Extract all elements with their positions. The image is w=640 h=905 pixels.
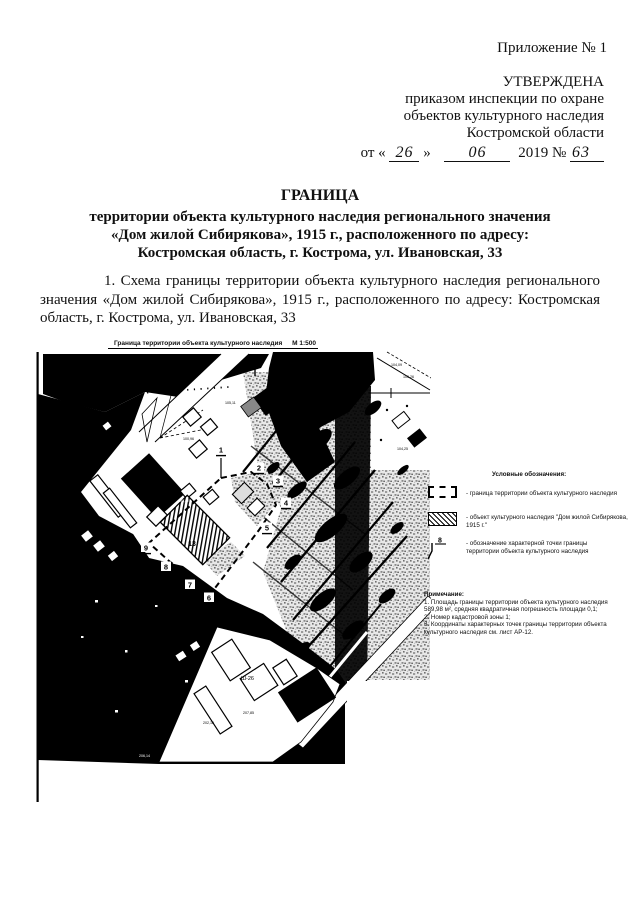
- approval-line-3: объектов культурного наследия: [361, 108, 604, 125]
- point-marker-2: 2: [254, 463, 264, 474]
- hatched-object-icon: [428, 512, 457, 526]
- date-year: 2019 №: [518, 145, 566, 161]
- date-month-handwritten: 06: [444, 144, 510, 162]
- point-marker-4: 4: [281, 498, 291, 509]
- point-marker-7: 7: [185, 580, 195, 591]
- date-prefix: от «: [361, 145, 386, 161]
- map-left-border: [37, 352, 39, 802]
- svg-text:206,14: 206,14: [139, 754, 150, 758]
- map-scale: М 1:500: [292, 340, 316, 347]
- svg-text:5: 5: [265, 524, 269, 533]
- document-page: Приложение № 1 УТВЕРЖДЕНА приказом инспе…: [0, 0, 640, 905]
- svg-text:207,85: 207,85: [243, 711, 254, 715]
- svg-text:9: 9: [144, 544, 148, 553]
- point-marker-9: 9: [141, 543, 151, 554]
- document-title: ГРАНИЦА территории объекта культурного н…: [0, 187, 640, 262]
- svg-text:6: 6: [207, 594, 211, 603]
- svg-text:3: 3: [276, 477, 280, 486]
- note-item-2: 2. Номер кадастровой зоны 1;: [424, 614, 622, 622]
- legend-point-number: 8: [438, 538, 442, 545]
- approval-line-2: приказом инспекции по охране: [361, 91, 604, 108]
- point-marker-6: 6: [204, 593, 214, 604]
- approval-block: УТВЕРЖДЕНА приказом инспекции по охране …: [361, 74, 604, 162]
- map-title: Граница территории объекта культурного н…: [108, 340, 318, 349]
- legend-caption-object: - объект культурного наследия "Дом жилой…: [466, 514, 631, 529]
- appendix-label: Приложение № 1: [0, 40, 607, 57]
- note-item-3: 3. Координаты характерных точек границы …: [424, 621, 622, 636]
- svg-text:108,82: 108,82: [178, 499, 189, 503]
- approval-line-4: Костромской области: [361, 125, 604, 142]
- boundary-point-icon: 8: [425, 536, 451, 567]
- title-line-4: Костромская область, г. Кострома, ул. Ив…: [0, 244, 640, 262]
- svg-text:1: 1: [219, 446, 223, 455]
- map-bottom-margin: [35, 766, 347, 805]
- legend-heading: Условные обозначения:: [492, 471, 566, 479]
- point-marker-5: 5: [262, 523, 272, 534]
- cadastral-map: 13 Ш-26: [35, 350, 431, 805]
- svg-text:105,11: 105,11: [225, 401, 236, 405]
- point-marker-3: 3: [273, 476, 283, 487]
- map-title-text: Граница территории объекта культурного н…: [114, 340, 282, 347]
- black-band-vertical: [335, 386, 371, 690]
- paragraph-1: 1. Схема границы территории объекта куль…: [40, 272, 600, 328]
- svg-text:8: 8: [164, 563, 168, 572]
- legend-caption-point: - обозначение характерной точки границы …: [466, 540, 618, 555]
- note-item-1: 1. Площадь границы территории объекта ку…: [424, 599, 622, 614]
- date-quote-close: »: [423, 145, 431, 161]
- block-label: Ш-26: [241, 676, 254, 682]
- svg-text:2: 2: [257, 464, 261, 473]
- svg-text:100,96: 100,96: [183, 437, 194, 441]
- heritage-building-number: 13: [188, 541, 196, 548]
- point-marker-8: 8: [161, 562, 171, 573]
- svg-text:104,09: 104,09: [391, 363, 402, 367]
- title-line-2: территории объекта культурного наследия …: [0, 208, 640, 226]
- notes-heading: Примечание:: [424, 591, 622, 599]
- date-day-handwritten: 26: [389, 144, 419, 162]
- dashed-boundary-icon: [428, 486, 457, 498]
- title-line-3: «Дом жилой Сибирякова», 1915 г., располо…: [0, 226, 640, 244]
- title-heading: ГРАНИЦА: [0, 187, 640, 205]
- svg-text:202,16: 202,16: [203, 721, 214, 725]
- approval-dateline: от « 26 » 06 2019 № 63: [361, 144, 604, 162]
- date-number-handwritten: 63: [570, 144, 604, 162]
- point-marker-1: 1: [216, 445, 226, 456]
- map-cut-corner: [347, 681, 431, 805]
- svg-text:104,25: 104,25: [397, 447, 408, 451]
- legend-caption-boundary: - граница территории объекта культурного…: [466, 490, 638, 498]
- svg-text:7: 7: [188, 581, 192, 590]
- notes-block: Примечание: 1. Площадь границы территори…: [424, 591, 622, 636]
- svg-text:105,26: 105,26: [403, 375, 414, 379]
- approval-line-1: УТВЕРЖДЕНА: [361, 74, 604, 91]
